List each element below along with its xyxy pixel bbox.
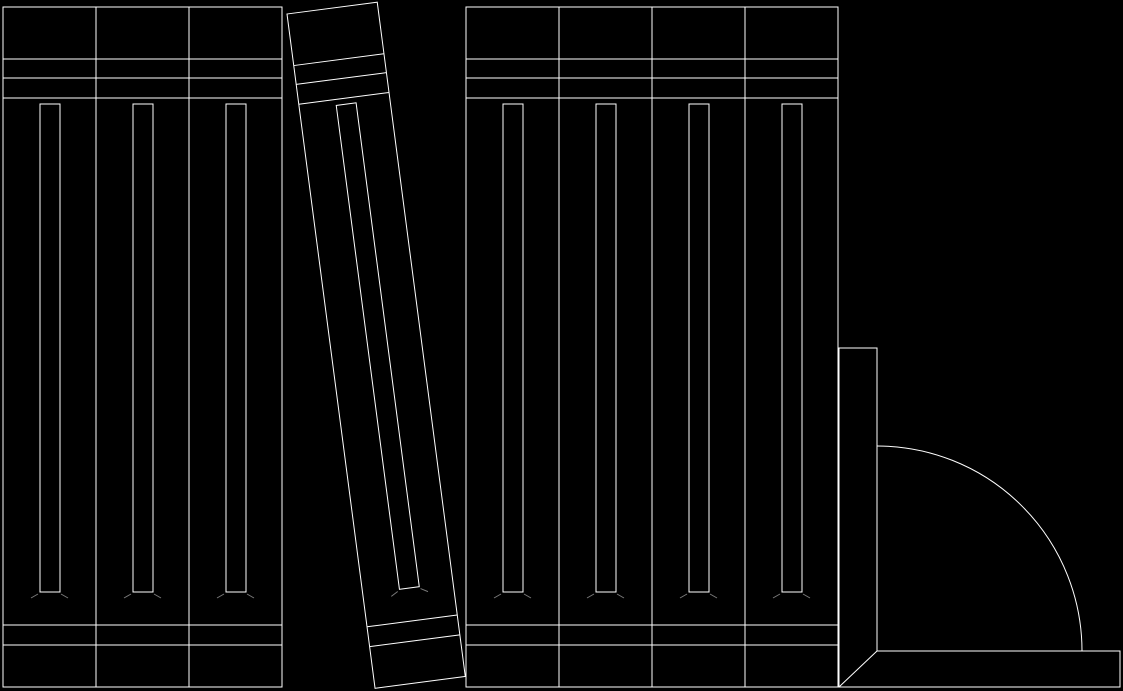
book-band-line xyxy=(367,615,457,627)
book-spine-label-rect xyxy=(782,104,802,592)
book-spine-label-rect xyxy=(689,104,709,592)
book-label-corner-tick xyxy=(587,594,594,598)
book-label-corner-tick xyxy=(710,594,717,598)
book-outline xyxy=(287,2,465,688)
book-band-line xyxy=(294,54,384,66)
bookend-arc xyxy=(877,446,1082,651)
book-label-corner-tick xyxy=(617,594,624,598)
book-label-corner-tick xyxy=(494,594,501,598)
book-outline xyxy=(559,7,652,687)
book-label-corner-tick xyxy=(31,594,38,598)
book-right-3[interactable] xyxy=(652,7,745,687)
book-right-2[interactable] xyxy=(559,7,652,687)
book-label-corner-tick xyxy=(247,594,254,598)
book-outline xyxy=(652,7,745,687)
books-and-bookend-drawing xyxy=(0,0,1123,691)
book-spine-label-rect xyxy=(503,104,523,592)
bookend[interactable] xyxy=(839,348,1120,687)
book-spine-label-rect xyxy=(40,104,60,592)
book-label-corner-tick xyxy=(124,594,131,598)
book-label-corner-tick xyxy=(803,594,810,598)
book-spine-label-rect xyxy=(596,104,616,592)
book-right-4[interactable] xyxy=(745,7,838,687)
book-left-2[interactable] xyxy=(96,7,189,687)
book-outline xyxy=(745,7,838,687)
book-label-corner-tick xyxy=(421,588,428,593)
book-right-1[interactable] xyxy=(466,7,559,687)
book-spine-label-rect xyxy=(336,103,419,589)
book-outline xyxy=(189,7,282,687)
book-band-line xyxy=(299,92,389,104)
book-outline xyxy=(3,7,96,687)
book-spine-label-rect xyxy=(226,104,246,592)
cad-canvas[interactable] xyxy=(0,0,1123,691)
book-tilted[interactable] xyxy=(287,2,465,688)
book-label-corner-tick xyxy=(524,594,531,598)
book-label-corner-tick xyxy=(217,594,224,598)
bookend-outline xyxy=(839,348,1120,687)
book-label-corner-tick xyxy=(680,594,687,598)
book-label-corner-tick xyxy=(391,592,398,597)
book-band-line xyxy=(296,73,386,85)
book-label-corner-tick xyxy=(773,594,780,598)
book-spine-label-rect xyxy=(133,104,153,592)
bookend-bevel-line xyxy=(839,651,877,687)
book-left-1[interactable] xyxy=(3,7,96,687)
book-outline xyxy=(96,7,189,687)
book-label-corner-tick xyxy=(61,594,68,598)
book-left-3[interactable] xyxy=(189,7,282,687)
book-band-line xyxy=(370,635,460,647)
book-outline xyxy=(466,7,559,687)
book-label-corner-tick xyxy=(154,594,161,598)
